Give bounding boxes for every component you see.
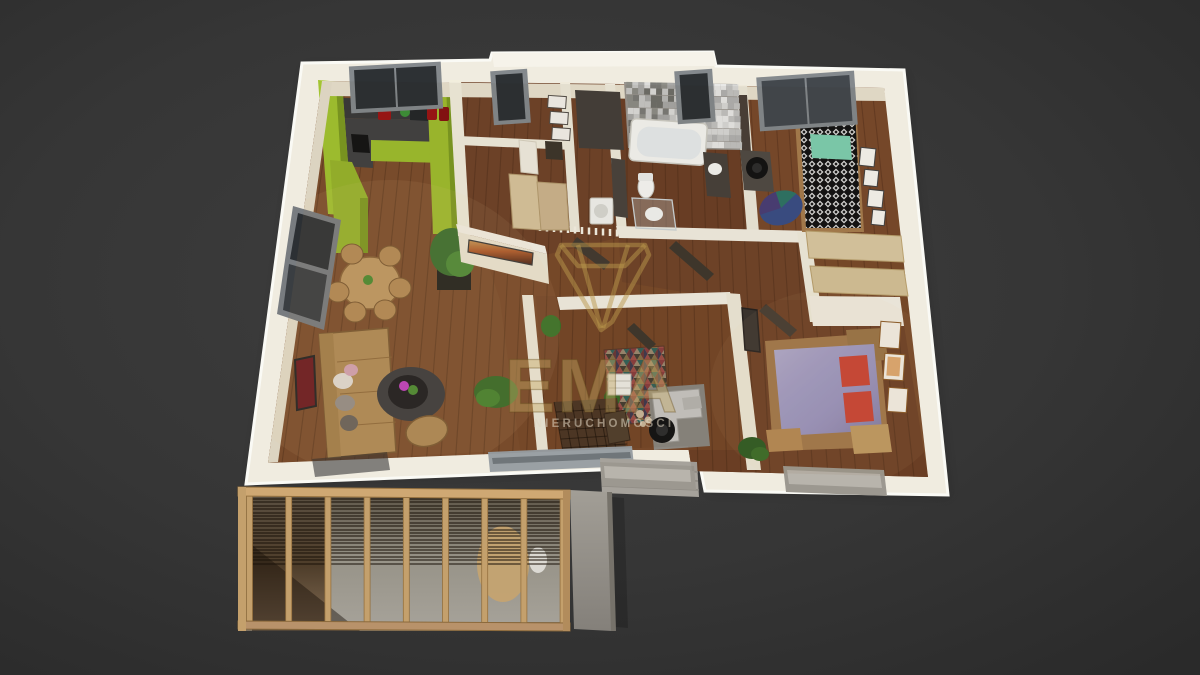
svg-text:EMA: EMA bbox=[505, 344, 680, 429]
svg-text:NIERUCHOMOŚCI: NIERUCHOMOŚCI bbox=[534, 417, 675, 430]
